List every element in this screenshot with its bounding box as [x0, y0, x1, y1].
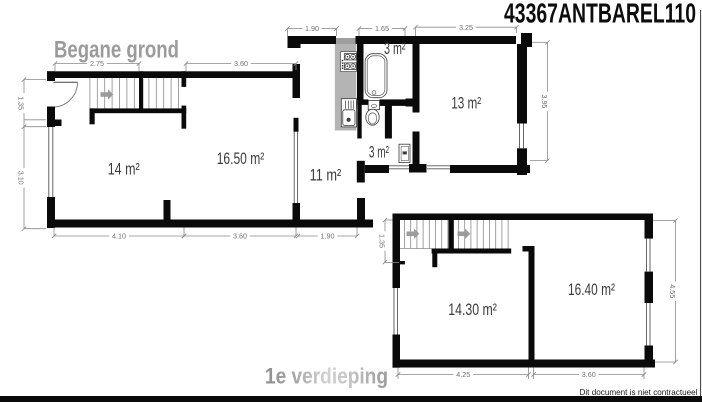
- svg-text:3 m²: 3 m²: [369, 144, 389, 162]
- svg-text:4.25: 4.25: [456, 370, 470, 379]
- svg-text:3.25: 3.25: [459, 23, 473, 32]
- svg-text:3.95: 3.95: [540, 94, 549, 108]
- svg-text:1.90: 1.90: [305, 24, 319, 33]
- svg-text:14 m²: 14 m²: [108, 160, 140, 178]
- svg-text:1.65: 1.65: [375, 24, 389, 33]
- svg-text:3.60: 3.60: [234, 59, 248, 68]
- svg-text:11 m²: 11 m²: [310, 167, 342, 185]
- svg-text:Dit document is niet contractu: Dit document is niet contractueel: [580, 387, 698, 397]
- svg-text:4.55: 4.55: [668, 284, 677, 298]
- svg-text:1e verdieping: 1e verdieping: [265, 363, 388, 388]
- svg-text:4.10: 4.10: [112, 232, 126, 241]
- svg-text:3 m²: 3 m²: [384, 40, 406, 58]
- svg-text:1.35: 1.35: [378, 234, 387, 248]
- svg-text:14.30 m²: 14.30 m²: [448, 301, 497, 319]
- svg-text:3.10: 3.10: [17, 171, 26, 185]
- svg-text:16.50 m²: 16.50 m²: [217, 150, 265, 168]
- svg-text:3.60: 3.60: [233, 232, 247, 241]
- svg-text:16.40 m²: 16.40 m²: [568, 281, 615, 299]
- svg-text:1.35: 1.35: [17, 96, 26, 110]
- svg-text:Begane grond: Begane grond: [54, 37, 179, 64]
- svg-text:3.60: 3.60: [582, 370, 596, 379]
- svg-text:43367ANTBAREL110: 43367ANTBAREL110: [504, 0, 696, 28]
- svg-text:1.90: 1.90: [321, 232, 335, 241]
- svg-text:13 m²: 13 m²: [451, 95, 481, 113]
